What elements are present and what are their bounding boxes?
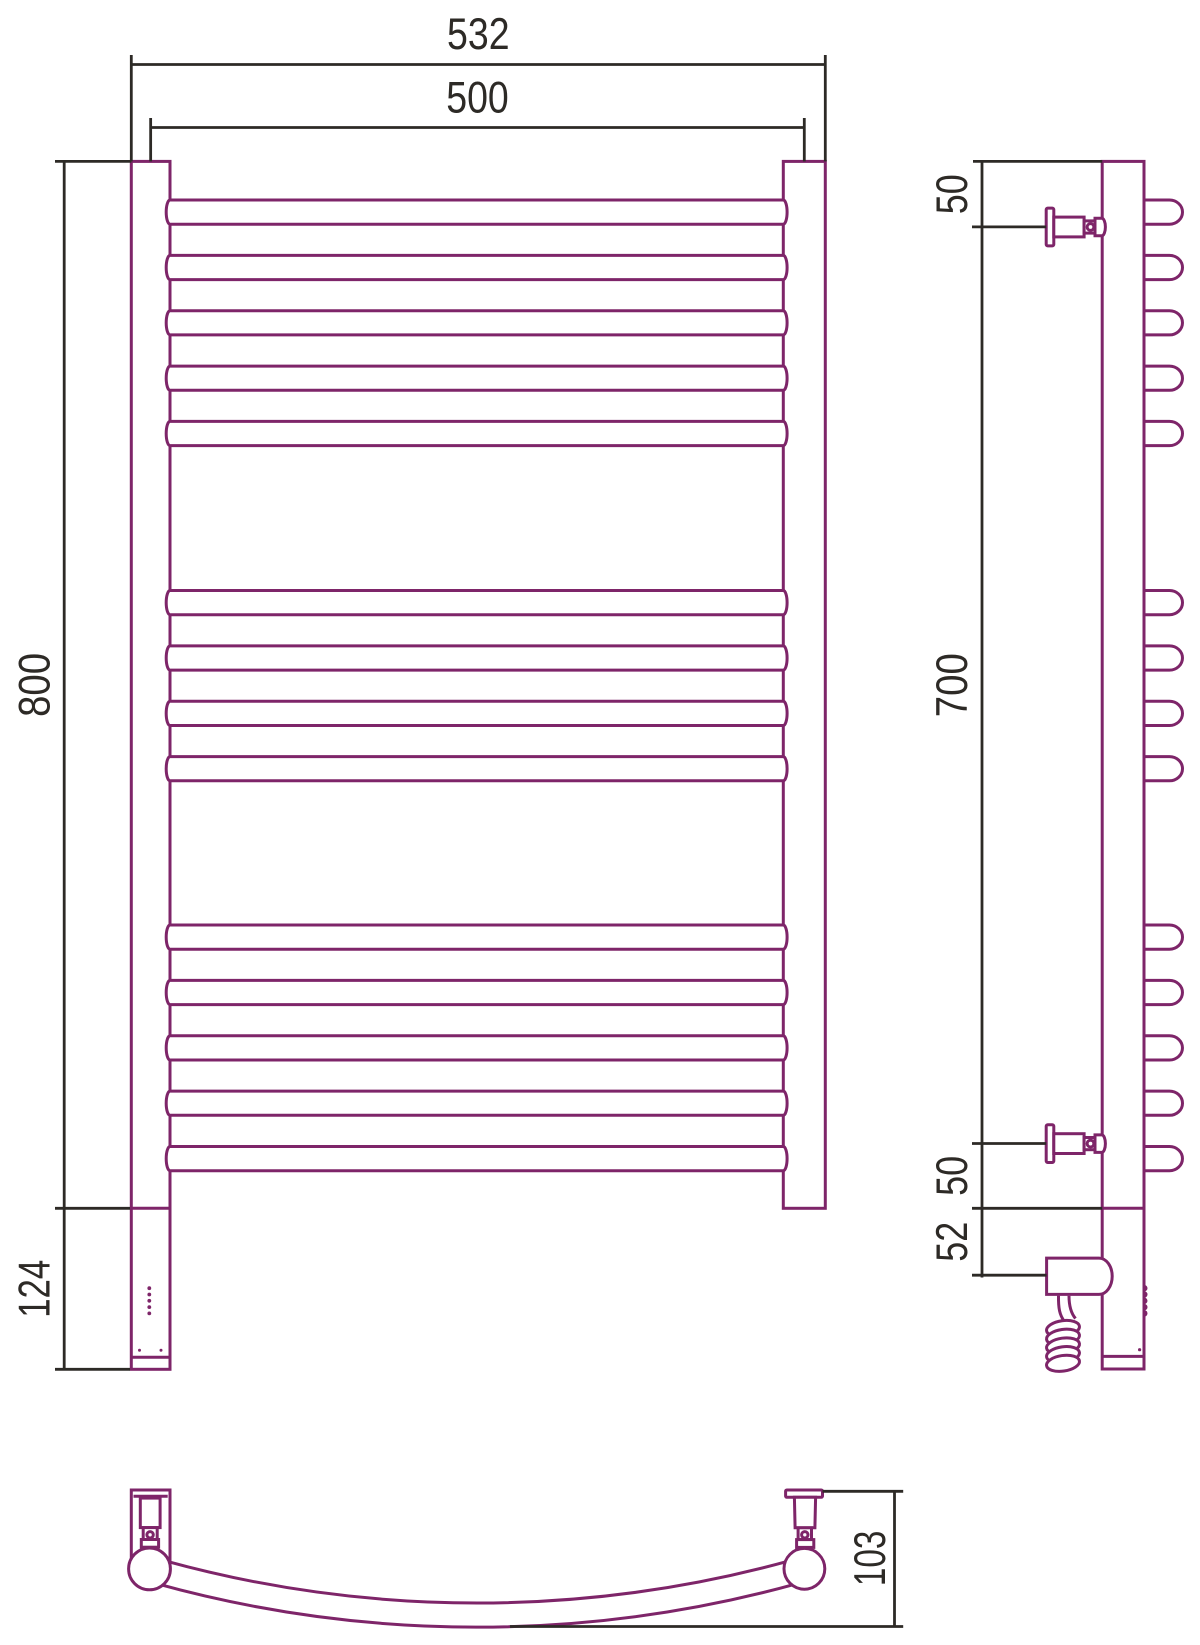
svg-text:50: 50 — [928, 174, 977, 214]
svg-text:500: 500 — [446, 73, 509, 122]
svg-text:52: 52 — [928, 1222, 977, 1262]
svg-text:103: 103 — [846, 1531, 895, 1587]
svg-text:124: 124 — [10, 1260, 59, 1318]
svg-text:800: 800 — [10, 653, 59, 717]
svg-text:700: 700 — [928, 653, 977, 717]
svg-text:50: 50 — [928, 1156, 977, 1196]
svg-text:532: 532 — [447, 10, 510, 59]
